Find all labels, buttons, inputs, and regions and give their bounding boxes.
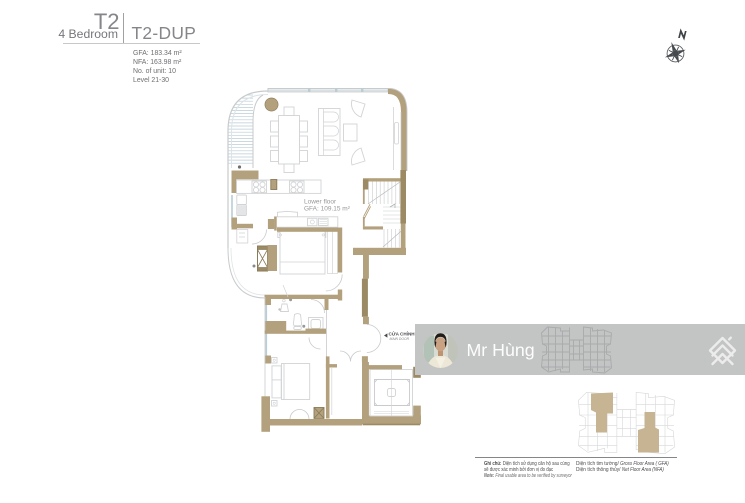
svg-text:CỬA CHÍNH: CỬA CHÍNH [389,329,416,336]
svg-text:GFA: 109.15 m²: GFA: 109.15 m² [304,206,351,213]
svg-text:Mr Hùng: Mr Hùng [466,340,534,360]
svg-text:Lower floor: Lower floor [304,199,337,206]
svg-text:MAIN DOOR: MAIN DOOR [390,337,410,341]
